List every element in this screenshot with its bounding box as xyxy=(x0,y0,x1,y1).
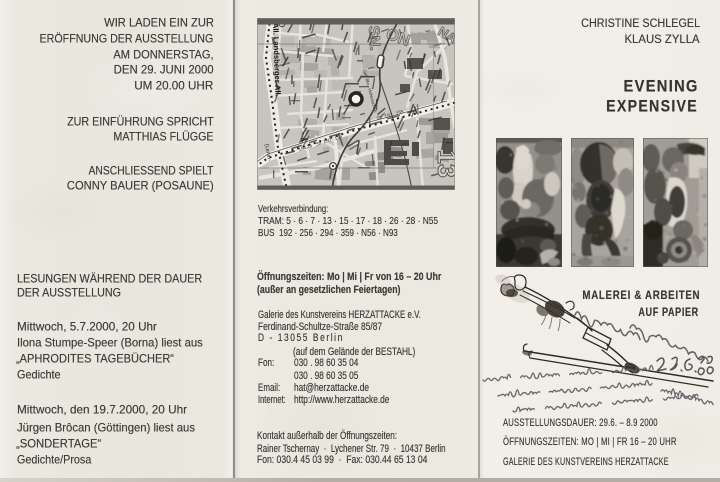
svg-text:13: 13 xyxy=(432,150,455,178)
svg-text:SN.: SN. xyxy=(365,25,383,51)
